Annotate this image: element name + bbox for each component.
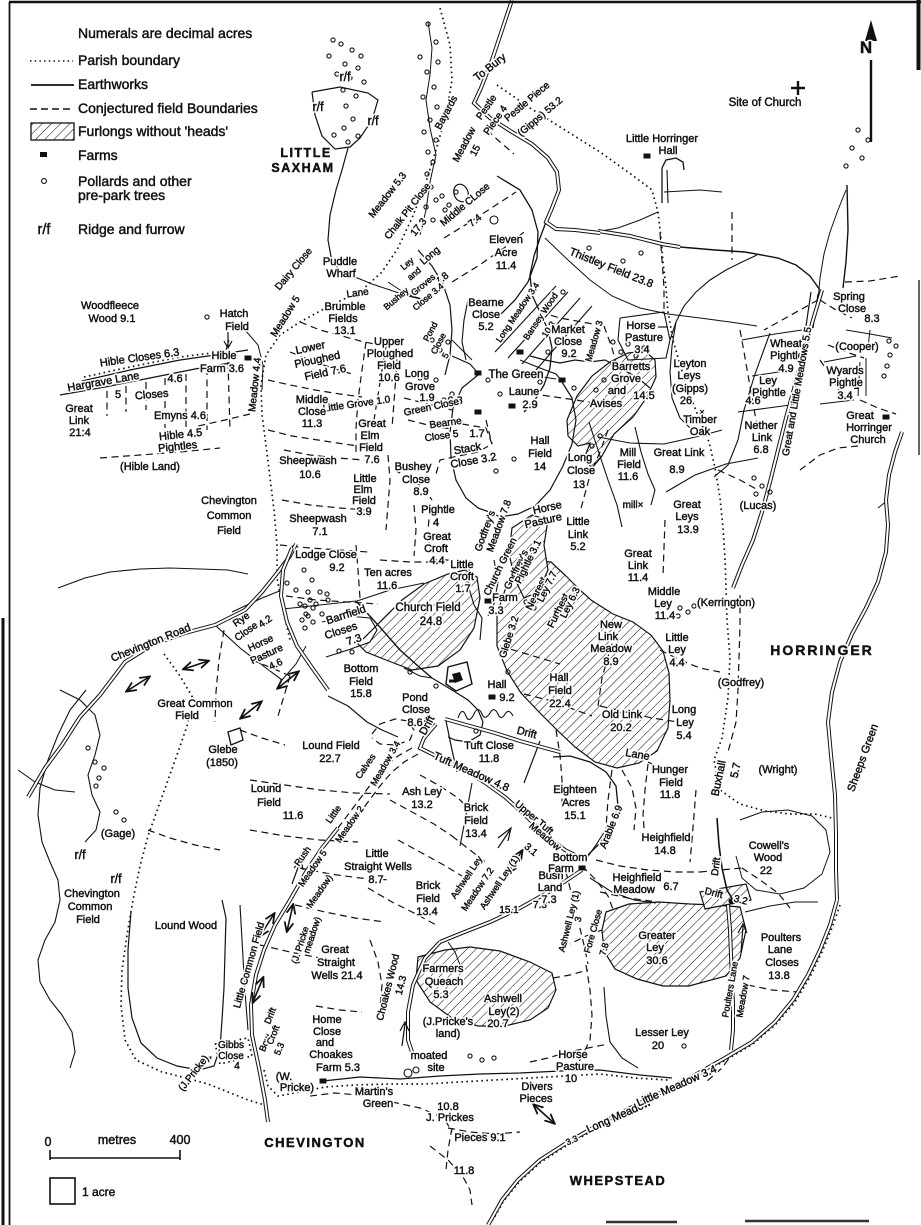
svg-text:Lane: Lane [768,944,792,956]
svg-text:Ridge and furrow: Ridge and furrow [78,221,186,237]
svg-text:Barretts: Barretts [612,361,651,373]
svg-text:Brumble: Brumble [325,301,366,313]
svg-text:11.8: 11.8 [660,789,681,801]
svg-text:Ploughed: Ploughed [367,348,414,360]
svg-text:Little: Little [450,559,473,571]
svg-text:Grove: Grove [611,373,641,385]
svg-text:Acres: Acres [562,797,591,809]
svg-text:LITTLE: LITTLE [280,146,331,160]
svg-text:5.2: 5.2 [478,321,493,333]
svg-text:Chevington: Chevington [64,888,120,900]
svg-text:Great: Great [65,403,93,415]
svg-text:30.6: 30.6 [646,955,667,967]
svg-text:13.4: 13.4 [416,906,437,918]
svg-text:Woodfleece: Woodfleece [81,300,139,312]
svg-text:J. Prickes: J. Prickes [426,1112,474,1124]
svg-text:11.4: 11.4 [628,572,649,584]
svg-text:r/f: r/f [312,100,324,114]
svg-text:11.8: 11.8 [454,1165,475,1177]
svg-text:Wheat: Wheat [770,338,802,350]
svg-text:Little: Little [665,632,688,644]
svg-text:Ley: Ley [676,717,694,729]
svg-text:13.4: 13.4 [465,828,486,840]
svg-text:4.6: 4.6 [167,373,182,385]
svg-text:Brick: Brick [416,880,441,892]
svg-text:22.4: 22.4 [549,698,570,710]
svg-text:Bushey: Bushey [395,461,432,473]
svg-text:Field: Field [617,459,641,471]
svg-text:Great: Great [846,410,874,422]
svg-text:Wood: Wood [754,852,783,864]
svg-text:10.6: 10.6 [299,469,320,481]
svg-text:Brick: Brick [464,802,489,814]
svg-text:CHEVINGTON: CHEVINGTON [264,1135,365,1150]
svg-text:Link: Link [598,631,619,643]
svg-text:Ley: Ley [654,598,672,610]
svg-text:Martin's: Martin's [355,1086,394,1098]
svg-text:Meadow: Meadow [613,884,655,896]
svg-text:13.9: 13.9 [677,524,698,536]
svg-text:Field: Field [548,685,572,697]
svg-text:3.3: 3.3 [488,605,503,617]
svg-text:Straight: Straight [317,957,355,969]
svg-text:Field: Field [349,676,373,688]
svg-text:1.7: 1.7 [469,428,484,440]
svg-text:Farms: Farms [78,147,118,163]
svg-text:Chevington: Chevington [201,495,257,507]
svg-text:Close: Close [838,303,866,315]
svg-text:1.7: 1.7 [455,583,470,595]
svg-text:Hible: Hible [211,350,236,362]
svg-text:Hunger: Hunger [652,764,688,776]
svg-text:3.4: 3.4 [634,344,649,356]
svg-text:Church: Church [850,434,885,446]
svg-text:Gibbs: Gibbs [218,1040,244,1051]
svg-text:11.4: 11.4 [655,610,676,622]
svg-text:Lound Field: Lound Field [302,740,360,752]
svg-text:Hall: Hall [659,145,678,157]
svg-text:Bottom: Bottom [344,663,379,675]
svg-text:Field: Field [225,321,249,333]
svg-text:Field: Field [175,710,199,722]
svg-text:Hall: Hall [531,435,550,447]
svg-text:Straight Wells: Straight Wells [344,861,412,873]
svg-text:Laune: Laune [509,386,540,398]
svg-text:Eighteen: Eighteen [553,784,596,796]
svg-text:Tuft Close: Tuft Close [464,740,514,752]
svg-text:22: 22 [760,865,772,877]
svg-text:site: site [427,1062,444,1074]
svg-text:Great: Great [423,531,451,543]
svg-text:Horse: Horse [626,320,655,332]
svg-text:Timber: Timber [683,414,717,426]
svg-text:r/f: r/f [367,114,379,128]
svg-text:(Godfrey): (Godfrey) [718,677,764,689]
svg-text:20: 20 [652,1040,664,1052]
svg-text:Close: Close [218,1051,244,1062]
svg-text:Leys: Leys [677,370,701,382]
svg-text:Pightle: Pightle [829,377,863,389]
svg-text:Horse: Horse [558,1049,587,1061]
svg-text:21:4: 21:4 [69,427,90,439]
svg-text:WHEPSTEAD: WHEPSTEAD [570,1173,667,1188]
svg-text:Heighfield: Heighfield [642,832,691,844]
svg-text:Field: Field [416,893,440,905]
svg-text:4: 4 [234,1061,240,1072]
svg-text:Furlongs without 'heads': Furlongs without 'heads' [78,123,228,139]
svg-text:Field: Field [76,914,100,926]
svg-text:8.7: 8.7 [368,874,383,886]
svg-text:Long: Long [672,704,696,716]
svg-text:Great Link: Great Link [654,447,705,459]
svg-text:4: 4 [433,517,439,529]
svg-text:Parish boundary: Parish boundary [78,52,180,68]
svg-text:Church Field: Church Field [395,602,460,614]
svg-text:Field: Field [659,777,683,789]
svg-text:Close: Close [298,406,326,418]
svg-text:Green: Green [363,1098,394,1110]
svg-text:Cowell's: Cowell's [749,840,790,852]
svg-text:Wood 9.1: Wood 9.1 [89,313,136,325]
svg-text:10.6: 10.6 [378,372,399,384]
svg-text:Market: Market [551,324,585,336]
svg-text:5.2: 5.2 [570,541,585,553]
svg-text:8.9: 8.9 [413,486,428,498]
svg-text:Bearne: Bearne [468,297,503,309]
svg-text:Close: Close [472,309,500,321]
svg-text:Choakes: Choakes [309,1049,353,1061]
svg-text:5.3: 5.3 [433,989,448,1001]
svg-text:Pond: Pond [402,692,428,704]
svg-text:Old Link: Old Link [602,709,643,721]
svg-text:r/f: r/f [74,848,86,862]
svg-text:14: 14 [534,461,546,473]
svg-text:Little: Little [365,848,388,860]
svg-text:10: 10 [565,1073,577,1085]
svg-text:20.2: 20.2 [610,722,631,734]
svg-text:Hall: Hall [488,679,507,691]
svg-text:8.9: 8.9 [603,656,618,668]
svg-text:Ten acres: Ten acres [364,567,412,579]
svg-text:Link: Link [752,432,773,444]
svg-text:Ley: Ley [759,375,777,387]
svg-text:Ley: Ley [668,644,686,656]
svg-text:11.4: 11.4 [496,260,517,272]
svg-text:Emyns 4.6: Emyns 4.6 [154,410,206,422]
svg-text:Meadow: Meadow [590,643,632,655]
svg-text:Field: Field [464,815,488,827]
svg-text:400: 400 [170,1133,191,1147]
svg-text:11.6: 11.6 [283,810,304,822]
svg-text:mill×: mill× [623,500,644,511]
svg-text:Croft: Croft [450,571,474,583]
svg-text:Earthworks: Earthworks [78,76,148,92]
svg-text:r/f: r/f [110,872,122,886]
svg-text:Close: Close [567,465,595,477]
svg-text:Pieces 9.1: Pieces 9.1 [454,1132,505,1144]
svg-text:Sheepwash: Sheepwash [289,513,347,525]
svg-text:6.8: 6.8 [753,444,768,456]
svg-text:11.6: 11.6 [377,580,398,592]
svg-text:Nether: Nether [744,420,777,432]
svg-text:Long: Long [568,452,592,464]
svg-text:Poulters: Poulters [761,932,802,944]
svg-text:15.1: 15.1 [564,810,585,822]
svg-text:Farm 5.3: Farm 5.3 [316,1062,360,1074]
svg-text:13.8: 13.8 [768,970,789,982]
svg-text:Lodge Close: Lodge Close [295,549,357,561]
svg-text:22.7: 22.7 [319,753,340,765]
svg-text:Pricke): Pricke) [280,1082,314,1094]
svg-text:9.2: 9.2 [499,692,514,704]
svg-text:Lound: Lound [251,783,282,795]
svg-text:Greater: Greater [638,930,676,942]
svg-text:Land: Land [538,882,562,894]
svg-text:26: 26 [680,395,692,407]
svg-text:Hatch: Hatch [220,308,249,320]
svg-text:Farm: Farm [492,592,518,604]
svg-text:7.1: 7.1 [312,526,327,538]
svg-text:3.4: 3.4 [837,390,852,402]
svg-text:New: New [600,619,622,631]
svg-text:Great: Great [321,944,349,956]
svg-text:Horringer: Horringer [846,422,892,434]
svg-text:(1850): (1850) [206,757,238,769]
svg-text:Queach: Queach [425,976,464,988]
svg-text:Field: Field [377,360,401,372]
svg-text:3.9: 3.9 [356,506,371,518]
svg-text:15.1: 15.1 [499,905,519,916]
svg-text:Close: Close [554,336,582,348]
svg-text:Pasture: Pasture [556,1061,594,1073]
svg-text:Middle: Middle [648,586,680,598]
svg-text:5: 5 [115,389,121,401]
svg-text:Field: Field [359,442,383,454]
svg-text:Pieces: Pieces [519,1093,553,1105]
svg-text:Home: Home [312,1014,341,1026]
svg-text:r/f: r/f [339,70,351,84]
svg-text:Puddle: Puddle [323,256,357,268]
svg-text:Long: Long [405,368,429,380]
svg-text:4.6: 4.6 [745,395,760,407]
svg-text:Pightle: Pightle [421,504,455,516]
svg-text:Field: Field [257,797,281,809]
svg-text:7.6: 7.6 [364,454,379,466]
svg-text:Numerals are decimal acres: Numerals are decimal acres [78,25,252,41]
svg-text:Common: Common [207,510,252,522]
svg-text:Pasture: Pasture [625,332,663,344]
svg-text:1 acre: 1 acre [82,1185,116,1199]
svg-text:Elm: Elm [361,430,380,442]
svg-text:Farm 3.6: Farm 3.6 [200,363,244,375]
svg-text:Wyards: Wyards [826,365,864,377]
svg-text:Fields: Fields [328,313,358,325]
svg-text:Acre: Acre [495,247,518,259]
svg-text:Farm: Farm [548,863,574,875]
svg-text:pre-park trees: pre-park trees [78,187,165,203]
svg-text:Great Common: Great Common [157,698,232,710]
svg-text:r/f: r/f [38,222,52,238]
svg-text:8.9: 8.9 [669,464,684,476]
svg-text:11.3: 11.3 [302,418,323,430]
svg-text:14.5: 14.5 [633,390,654,402]
svg-text:Hall: Hall [550,672,569,684]
svg-text:7.3: 7.3 [541,894,556,906]
svg-text:Glebe: Glebe [208,744,237,756]
svg-text:Wells 21.4: Wells 21.4 [311,970,362,982]
svg-text:Little Horringer: Little Horringer [626,133,698,145]
svg-text:13.2: 13.2 [411,799,432,811]
svg-text:24.8: 24.8 [420,616,442,628]
svg-text:Ley(2): Ley(2) [488,1006,519,1018]
svg-text:Divers: Divers [521,1081,553,1093]
svg-text:11.8: 11.8 [479,753,500,765]
svg-text:Common: Common [68,901,113,913]
svg-text:11.6: 11.6 [618,471,639,483]
svg-text:metres: metres [98,1133,136,1147]
svg-text:(Kerrington): (Kerrington) [697,597,755,609]
svg-text:(Lucas): (Lucas) [740,500,777,512]
svg-text:0: 0 [45,1135,52,1149]
svg-text:2.9: 2.9 [522,399,537,411]
svg-text:Ashwell: Ashwell [484,993,522,1005]
svg-text:Mill: Mill [620,447,637,459]
svg-text:N: N [860,38,872,57]
svg-text:8.3: 8.3 [864,313,879,325]
svg-text:Leyton: Leyton [673,358,706,370]
svg-text:15.8: 15.8 [350,688,371,700]
svg-text:Field: Field [528,448,552,460]
svg-text:4.4: 4.4 [429,555,444,567]
svg-text:Link: Link [628,560,649,572]
svg-text:Spring: Spring [833,291,865,303]
svg-text:SAXHAM: SAXHAM [271,161,334,175]
svg-text:(Hible Land): (Hible Land) [120,461,180,473]
svg-text:land): land) [436,1028,460,1040]
svg-text:4.9: 4.9 [778,363,793,375]
svg-text:Middle: Middle [296,394,328,406]
svg-text:9.2: 9.2 [561,348,576,360]
svg-text:Little: Little [566,516,589,528]
svg-text:Close: Close [402,474,430,486]
svg-text:Link: Link [69,415,90,427]
svg-text:Great: Great [624,548,652,560]
svg-text:Site of Church: Site of Church [729,97,802,109]
svg-text:Heighfield: Heighfield [613,872,662,884]
svg-text:Eleven: Eleven [489,234,523,246]
svg-text:(Gage): (Gage) [101,828,135,840]
svg-text:Oak: Oak [690,426,711,438]
svg-text:Ley: Ley [646,942,664,954]
svg-text:9.2: 9.2 [329,562,344,574]
svg-text:Ash Ley: Ash Ley [402,786,442,798]
svg-text:and: and [316,1037,334,1049]
svg-text:and: and [608,385,626,397]
svg-text:4.4: 4.4 [669,657,684,669]
svg-text:(J.Pricke's: (J.Pricke's [423,1016,474,1028]
svg-text:Great: Great [358,418,386,430]
svg-text:Closes: Closes [765,957,799,969]
svg-text:Field: Field [217,525,241,537]
svg-text:13: 13 [573,479,585,491]
svg-text:6.7: 6.7 [663,881,678,893]
svg-text:HORRINGER: HORRINGER [770,642,874,658]
svg-text:Avises: Avises [590,398,623,410]
svg-text:Croft: Croft [424,543,448,555]
svg-text:(Wright): (Wright) [759,764,798,776]
svg-text:moated: moated [411,1050,448,1062]
svg-text:(Cooper): (Cooper) [835,341,878,353]
svg-text:Great: Great [673,499,701,511]
svg-text:20.7: 20.7 [487,1018,508,1030]
svg-text:Lound Wood: Lound Wood [155,920,217,932]
svg-text:Link: Link [568,529,589,541]
svg-text:(Gipps): (Gipps) [672,383,708,395]
svg-text:5.4: 5.4 [676,730,691,742]
svg-text:Leys: Leys [675,511,699,523]
svg-text:The Green: The Green [489,369,544,381]
svg-text:Conjectured field Boundaries: Conjectured field Boundaries [78,100,258,116]
svg-text:13.1: 13.1 [334,325,355,337]
svg-text:Sheepwash: Sheepwash [279,455,337,467]
svg-text:Lesser Ley: Lesser Ley [635,1027,689,1039]
svg-text:Upper: Upper [374,336,404,348]
svg-text:Wharf: Wharf [326,268,356,280]
svg-text:Farmers: Farmers [423,963,464,975]
svg-text:14.8: 14.8 [654,845,675,857]
